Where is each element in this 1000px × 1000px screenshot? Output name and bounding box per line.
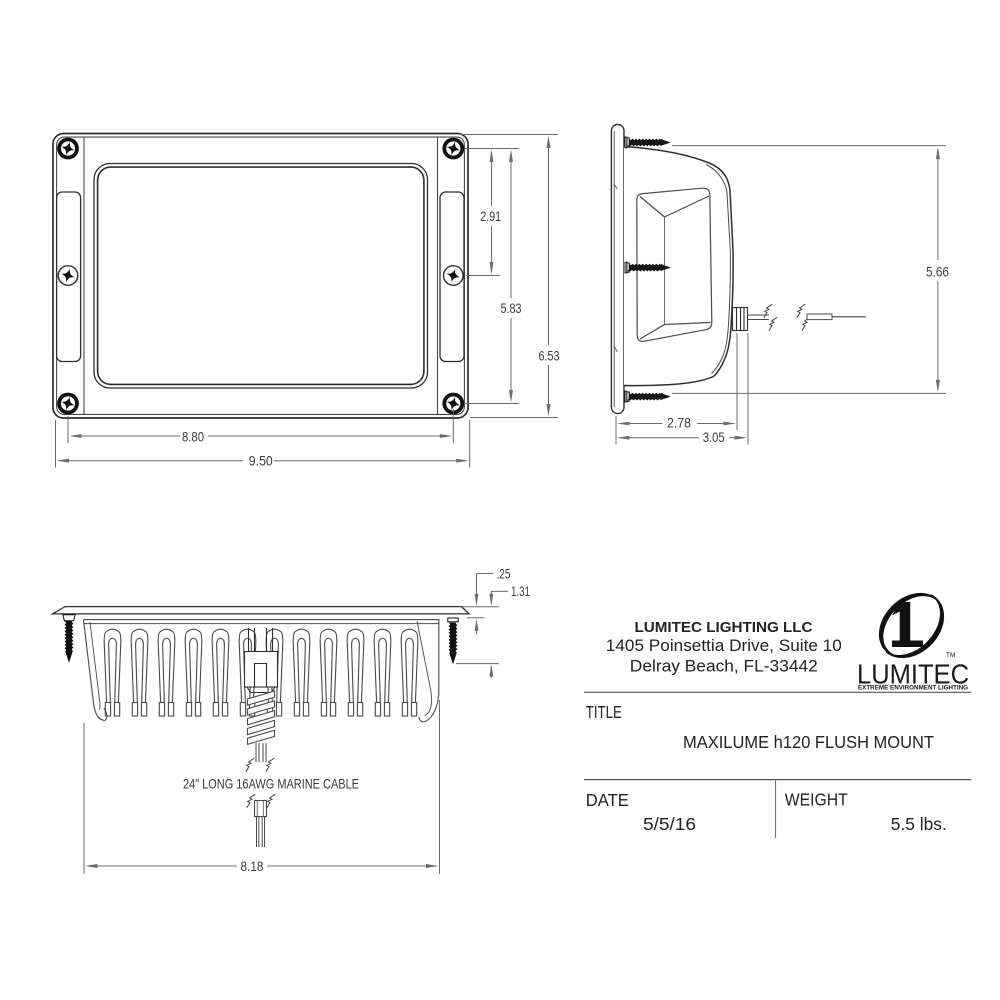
svg-text:5.66: 5.66 — [926, 265, 949, 281]
svg-text:8.18: 8.18 — [241, 859, 264, 875]
svg-text:MAXILUME h120 FLUSH MOUNT: MAXILUME h120 FLUSH MOUNT — [683, 732, 934, 752]
svg-text:WEIGHT: WEIGHT — [785, 790, 848, 810]
svg-text:DATE: DATE — [586, 790, 629, 810]
svg-text:2.78: 2.78 — [667, 416, 691, 432]
svg-text:1405 Poinsettia Drive, Suite 1: 1405 Poinsettia Drive, Suite 10 — [606, 637, 842, 655]
svg-text:LUMITEC LIGHTING LLC: LUMITEC LIGHTING LLC — [635, 619, 813, 636]
svg-text:3.05: 3.05 — [703, 430, 725, 446]
svg-text:9.50: 9.50 — [249, 453, 273, 469]
svg-text:5.5 lbs.: 5.5 lbs. — [891, 814, 947, 834]
svg-text:Delray Beach, FL-33442: Delray Beach, FL-33442 — [630, 658, 818, 676]
svg-text:6.53: 6.53 — [539, 349, 560, 365]
svg-text:1.31: 1.31 — [511, 584, 530, 600]
svg-text:.25: .25 — [497, 567, 511, 583]
svg-text:24" LONG 16AWG MARINE CABLE: 24" LONG 16AWG MARINE CABLE — [183, 776, 359, 791]
svg-text:5/5/16: 5/5/16 — [643, 814, 696, 834]
svg-text:EXTREME ENVIRONMENT LIGHTING: EXTREME ENVIRONMENT LIGHTING — [858, 685, 968, 692]
svg-text:2.91: 2.91 — [480, 209, 501, 225]
svg-text:TITLE: TITLE — [586, 702, 622, 722]
svg-text:8.80: 8.80 — [182, 430, 204, 446]
svg-text:5.83: 5.83 — [501, 301, 522, 317]
